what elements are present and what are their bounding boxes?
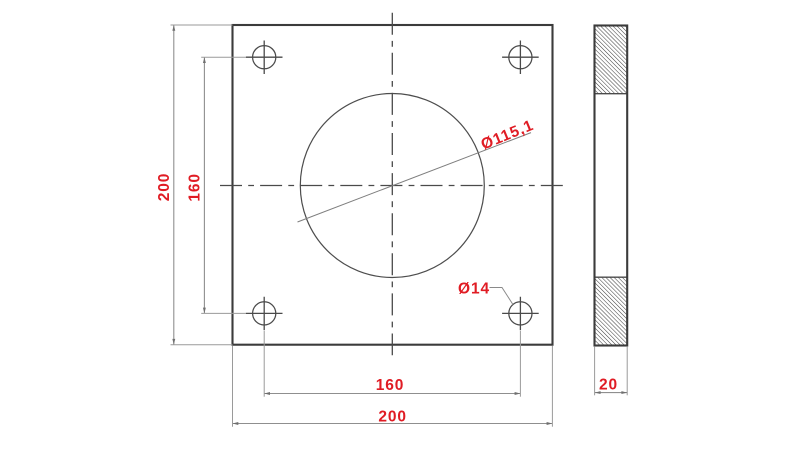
svg-text:200: 200 (378, 408, 407, 425)
svg-text:160: 160 (376, 377, 405, 394)
svg-text:Ø115,1: Ø115,1 (479, 117, 537, 154)
svg-text:160: 160 (186, 173, 203, 202)
svg-text:Ø14: Ø14 (458, 281, 490, 298)
svg-text:200: 200 (156, 173, 173, 202)
svg-text:20: 20 (599, 377, 618, 394)
